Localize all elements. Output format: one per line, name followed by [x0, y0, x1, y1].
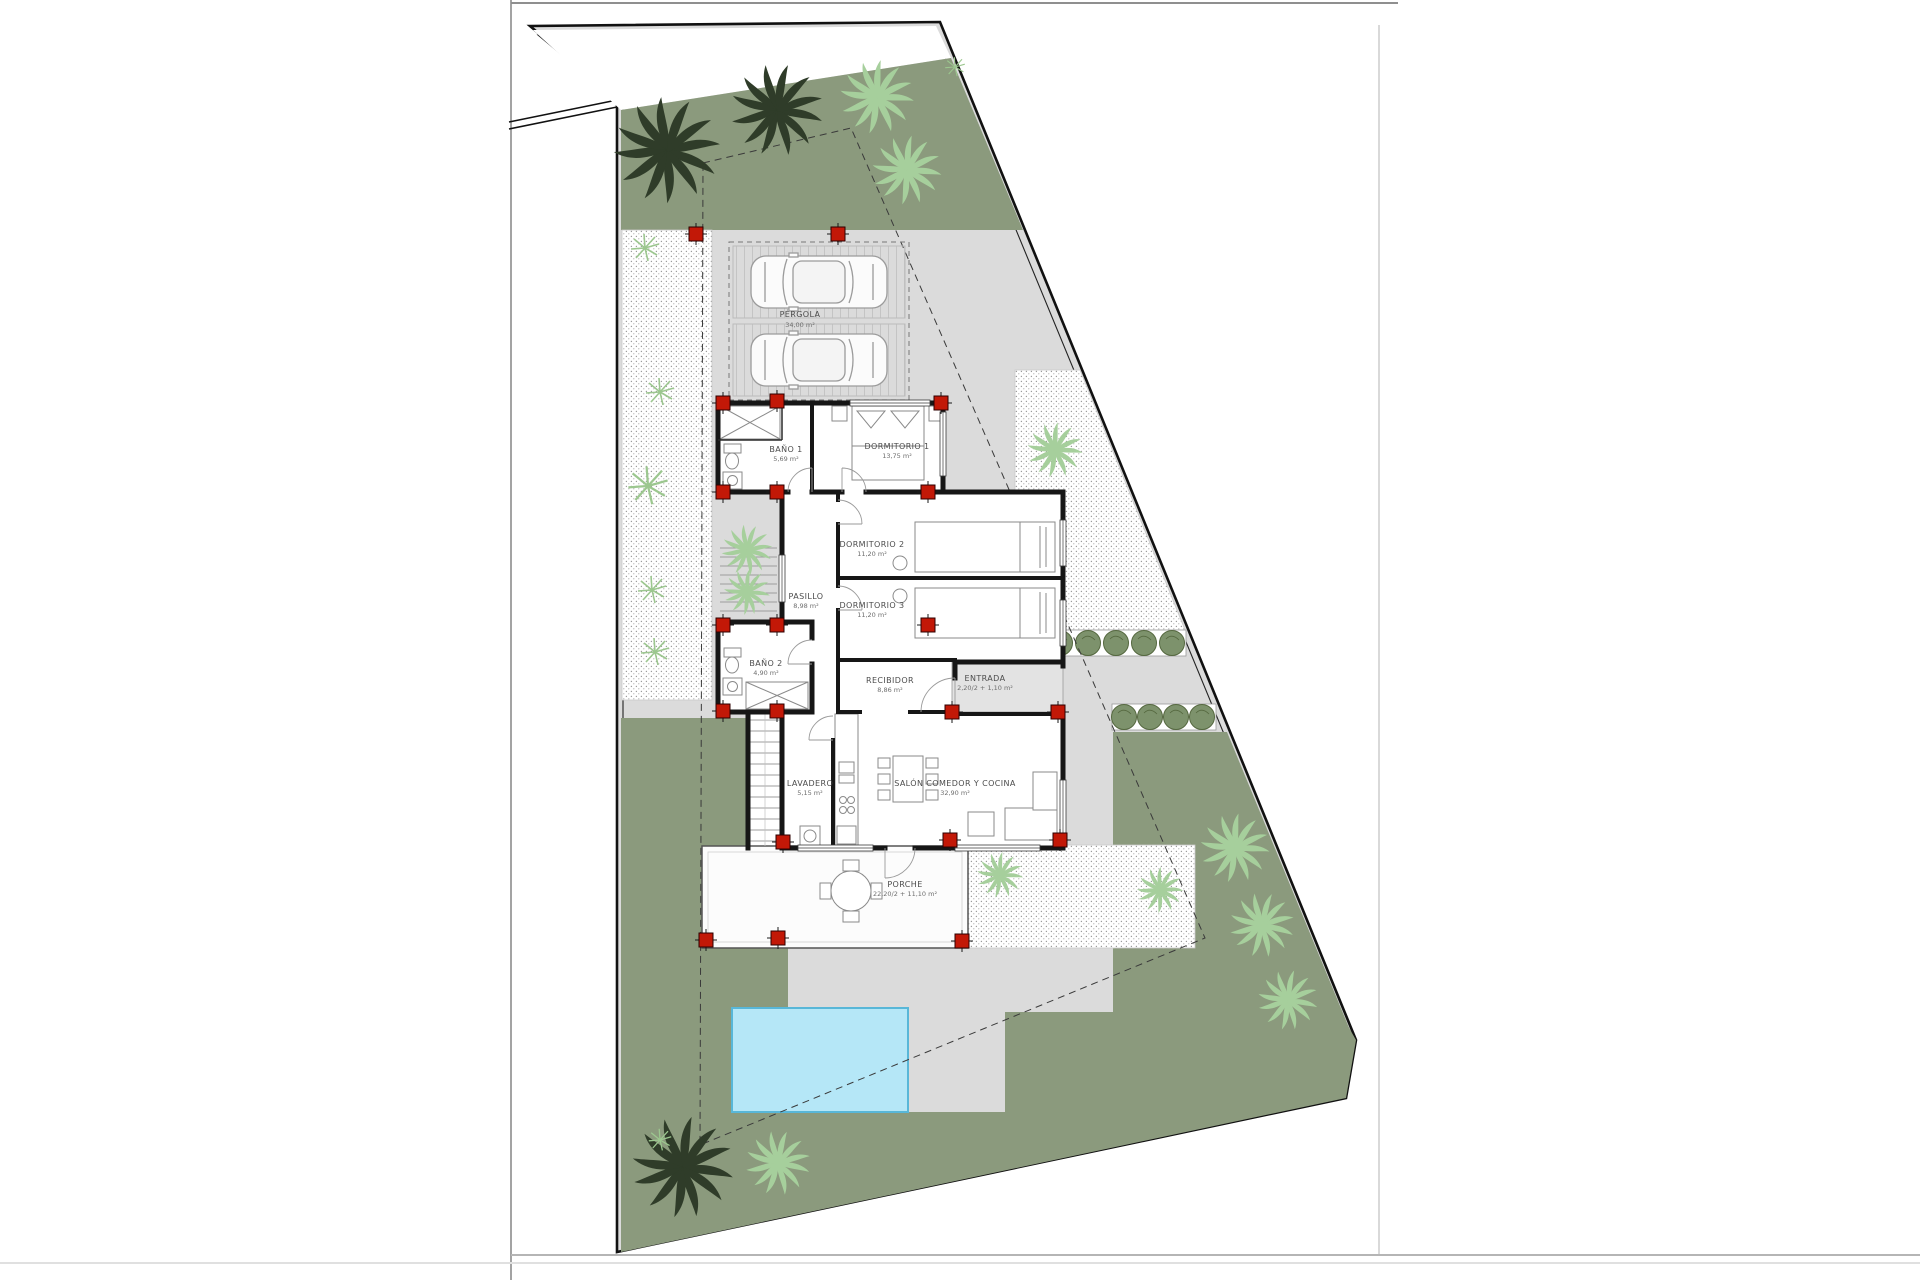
toilet-icon: [726, 453, 739, 469]
fridge: [837, 826, 856, 844]
nightstand: [832, 406, 847, 421]
room-label-lavadero: LAVADERO: [787, 779, 833, 788]
room-label-porche: PORCHE: [887, 880, 922, 889]
washing-machine: [800, 826, 820, 846]
room-area-dormitorio3: 11,20 m²: [857, 611, 887, 619]
hedge-bush-icon: [1138, 705, 1163, 730]
pool-area: [732, 1008, 1005, 1112]
room-area-bano1: 5,69 m²: [773, 455, 799, 463]
hedge-bush-icon: [1104, 631, 1129, 656]
porch-chair: [843, 860, 859, 871]
bed-dorm3: [915, 588, 1055, 638]
pool-apron: [908, 1008, 1005, 1112]
sofa-chaise: [1033, 772, 1057, 810]
swimming-pool: [732, 1008, 908, 1112]
room-area-recibidor: 8,86 m²: [877, 686, 903, 694]
porch-chair: [820, 883, 831, 899]
dining-chair: [878, 790, 890, 800]
hedge-bush-icon: [1164, 705, 1189, 730]
car-icon: [751, 331, 887, 389]
room-area-dormitorio2: 11,20 m²: [857, 550, 887, 558]
toilet-tank: [724, 444, 741, 453]
gravel-strip-west: [622, 230, 712, 700]
room-area-pasillo: 8,98 m²: [793, 602, 819, 610]
hedge-bush-icon: [1160, 631, 1185, 656]
dining-chair: [878, 774, 890, 784]
toilet-icon: [726, 657, 739, 673]
room-label-dormitorio2: DORMITORIO 2: [839, 540, 904, 549]
bed-dorm2: [915, 522, 1055, 572]
sofa: [1005, 808, 1057, 840]
room-label-dormitorio1: DORMITORIO 1: [864, 442, 929, 451]
room-area-dormitorio1: 13,75 m²: [882, 452, 912, 460]
stool: [893, 556, 907, 570]
dining-chair: [926, 790, 938, 800]
dining-chair: [926, 758, 938, 768]
porch-table: [831, 871, 871, 911]
site-plan-drawing: PÉRGOLA 34,00 m² BAÑO 1 5,69 m² DORMITOR…: [0, 0, 1920, 1280]
room-area-porche: 22,20/2 + 11,10 m²: [873, 890, 938, 898]
room-area-lavadero: 5,15 m²: [797, 789, 823, 797]
room-area-entrada: 2,20/2 + 1,10 m²: [957, 684, 1013, 692]
room-label-entrada: ENTRADA: [965, 674, 1006, 683]
hedge-bush-icon: [1076, 631, 1101, 656]
neighbour-boundary-line: [509, 100, 617, 129]
dining-chair: [878, 758, 890, 768]
hedge-bush-icon: [1112, 705, 1137, 730]
room-label-dormitorio3: DORMITORIO 3: [839, 601, 904, 610]
sink: [723, 678, 742, 695]
room-label-pergola: PÉRGOLA: [780, 308, 821, 319]
room-label-bano1: BAÑO 1: [769, 444, 802, 454]
room-area-pergola: 34,00 m²: [785, 321, 815, 329]
room-area-bano2: 4,90 m²: [753, 669, 779, 677]
room-label-bano2: BAÑO 2: [749, 658, 782, 668]
room-label-salon: SALÓN COMEDOR Y COCINA: [894, 777, 1016, 788]
armchair: [968, 812, 994, 836]
car-icon: [751, 253, 887, 311]
hedge-bush-icon: [1132, 631, 1157, 656]
toilet-tank: [724, 648, 741, 657]
room-area-salon: 32,90 m²: [940, 789, 970, 797]
porch-chair: [843, 911, 859, 922]
hedge-bush-icon: [1190, 705, 1215, 730]
room-label-recibidor: RECIBIDOR: [866, 676, 914, 685]
room-label-pasillo: PASILLO: [789, 592, 824, 601]
